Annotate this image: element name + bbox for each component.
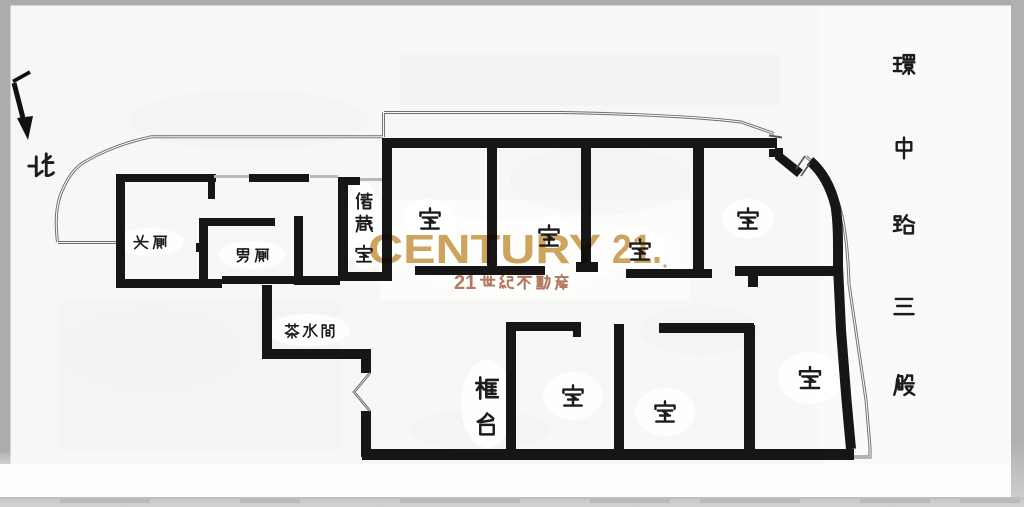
svg-text:CENTURY: CENTURY (368, 226, 601, 272)
svg-text:21: 21 (454, 272, 476, 294)
